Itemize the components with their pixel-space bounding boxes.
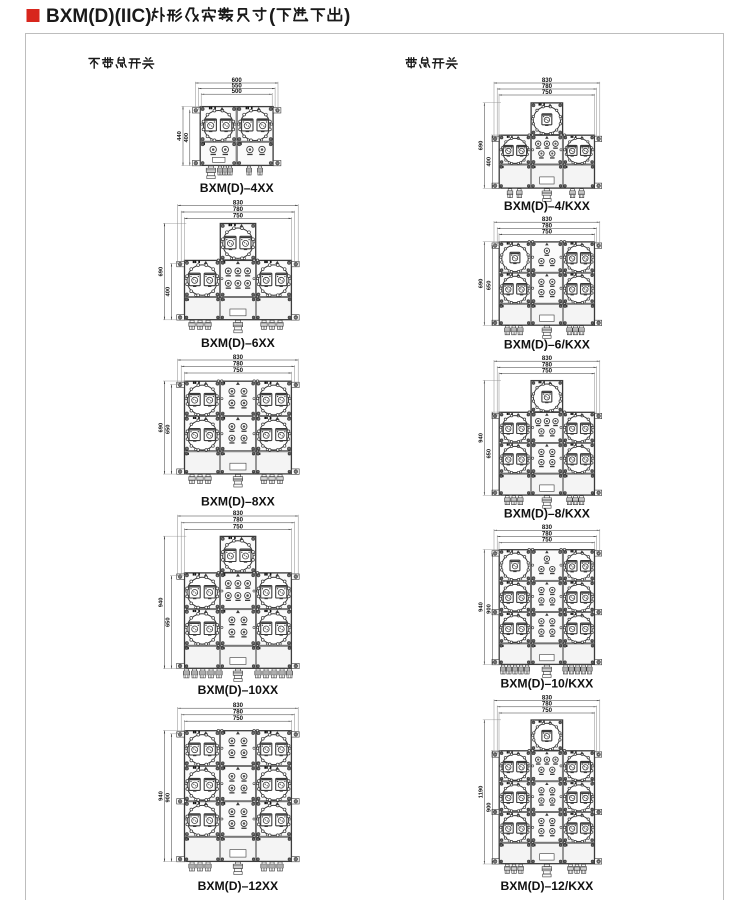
svg-text:750: 750 bbox=[542, 368, 553, 375]
svg-text:BXM(D)(IIC): BXM(D)(IIC) bbox=[46, 6, 152, 27]
svg-text:690: 690 bbox=[159, 267, 165, 277]
svg-text:940: 940 bbox=[478, 602, 484, 612]
svg-text:BXM(D)–6/KXX: BXM(D)–6/KXX bbox=[504, 338, 591, 352]
svg-text:900: 900 bbox=[487, 604, 493, 614]
svg-text:BXM(D)–4XX: BXM(D)–4XX bbox=[200, 181, 275, 195]
svg-text:750: 750 bbox=[542, 707, 553, 714]
svg-text:400: 400 bbox=[487, 157, 493, 167]
svg-text:750: 750 bbox=[542, 537, 553, 544]
svg-text:BXM(D)–10/KXX: BXM(D)–10/KXX bbox=[501, 677, 595, 691]
svg-text:750: 750 bbox=[233, 523, 244, 530]
svg-text:690: 690 bbox=[159, 423, 165, 433]
svg-text:BXM(D)–12/KXX: BXM(D)–12/KXX bbox=[501, 879, 595, 893]
svg-text:650: 650 bbox=[166, 424, 172, 434]
svg-text:(: ( bbox=[269, 6, 276, 27]
svg-text:1190: 1190 bbox=[478, 786, 484, 799]
svg-text:BXM(D)–12XX: BXM(D)–12XX bbox=[198, 879, 279, 893]
svg-text:940: 940 bbox=[478, 433, 484, 443]
svg-text:400: 400 bbox=[184, 133, 190, 143]
svg-text:690: 690 bbox=[478, 279, 484, 289]
svg-text:900: 900 bbox=[487, 802, 493, 812]
svg-text:750: 750 bbox=[233, 212, 244, 219]
svg-text:400: 400 bbox=[166, 287, 172, 297]
svg-text:650: 650 bbox=[487, 281, 493, 291]
svg-text:940: 940 bbox=[159, 598, 165, 608]
svg-text:): ) bbox=[344, 6, 350, 27]
svg-text:750: 750 bbox=[542, 89, 553, 96]
svg-text:750: 750 bbox=[233, 367, 244, 374]
svg-text:BXM(D)–6XX: BXM(D)–6XX bbox=[201, 336, 276, 350]
svg-text:500: 500 bbox=[232, 88, 243, 95]
svg-text:690: 690 bbox=[478, 141, 484, 151]
svg-text:650: 650 bbox=[487, 449, 493, 459]
svg-text:940: 940 bbox=[159, 791, 165, 801]
svg-text:BXM(D)–4/KXX: BXM(D)–4/KXX bbox=[504, 199, 591, 213]
svg-text:BXM(D)–10XX: BXM(D)–10XX bbox=[198, 683, 279, 697]
svg-text:650: 650 bbox=[166, 617, 172, 627]
svg-text:750: 750 bbox=[542, 228, 553, 235]
svg-text:750: 750 bbox=[233, 715, 244, 722]
svg-text:BXM(D)–8XX: BXM(D)–8XX bbox=[201, 495, 276, 509]
svg-text:BXM(D)–8/KXX: BXM(D)–8/KXX bbox=[504, 507, 591, 521]
svg-text:900: 900 bbox=[166, 793, 172, 803]
svg-text:440: 440 bbox=[177, 131, 183, 141]
